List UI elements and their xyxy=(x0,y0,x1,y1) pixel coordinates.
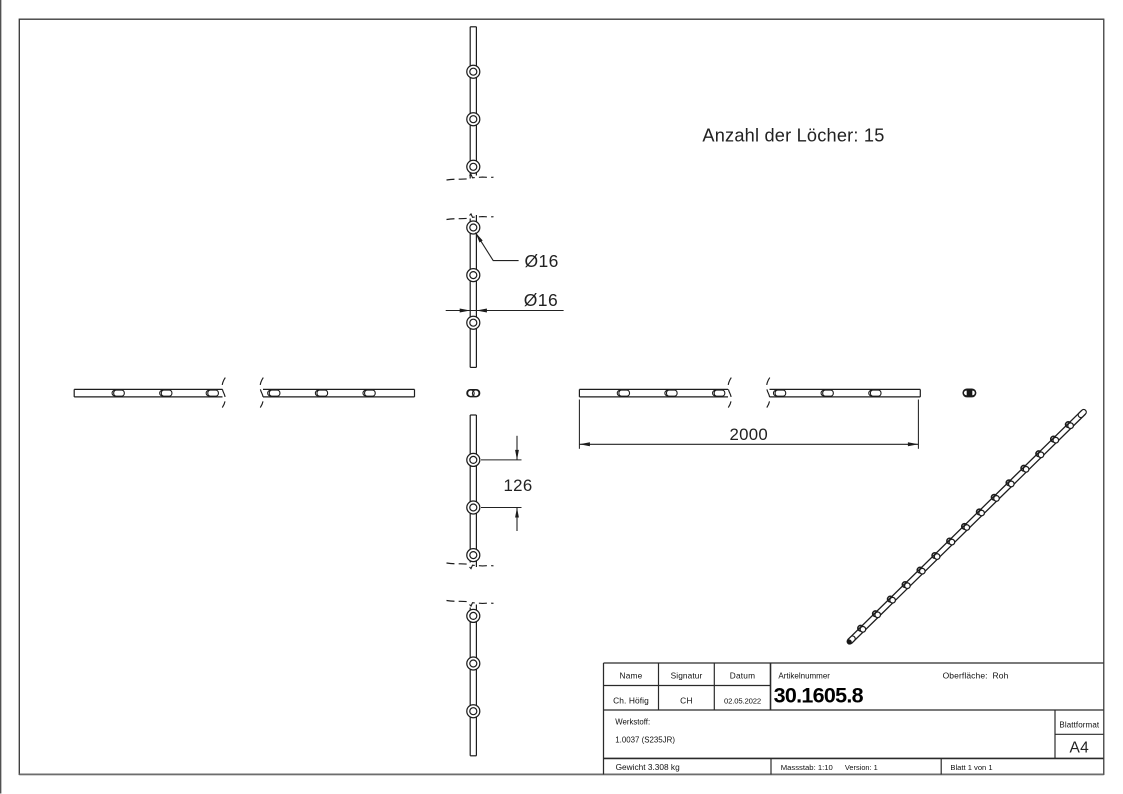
svg-text:Name: Name xyxy=(620,670,643,680)
svg-text:Blattformat: Blattformat xyxy=(1059,721,1099,730)
svg-text:2000: 2000 xyxy=(730,425,769,444)
svg-text:Ø16: Ø16 xyxy=(524,290,558,310)
svg-text:Werkstoff:: Werkstoff: xyxy=(615,717,650,726)
svg-text:Gewicht 3.308 kg: Gewicht 3.308 kg xyxy=(616,762,680,772)
svg-text:CH: CH xyxy=(680,695,693,705)
svg-text:Datum: Datum xyxy=(730,670,755,680)
svg-text:Signatur: Signatur xyxy=(671,670,703,680)
svg-text:Ø16: Ø16 xyxy=(525,251,559,271)
svg-text:30.1605.8: 30.1605.8 xyxy=(774,684,864,708)
svg-text:Massstab: 1:10: Massstab: 1:10 xyxy=(781,763,833,772)
svg-text:02.05.2022: 02.05.2022 xyxy=(724,696,761,705)
svg-text:Oberfläche: Roh: Oberfläche: Roh xyxy=(943,670,1009,680)
svg-text:A4: A4 xyxy=(1070,740,1090,757)
svg-text:Version: 1: Version: 1 xyxy=(845,763,878,772)
svg-text:Artikelnummer: Artikelnummer xyxy=(778,671,830,680)
svg-text:126: 126 xyxy=(504,476,533,495)
svg-text:Anzahl der Löcher: 15: Anzahl der Löcher: 15 xyxy=(702,126,884,146)
svg-text:Blatt 1 von 1: Blatt 1 von 1 xyxy=(950,763,992,772)
svg-text:Ch. Höfig: Ch. Höfig xyxy=(613,695,649,705)
svg-text:1.0037 (S235JR): 1.0037 (S235JR) xyxy=(615,735,675,744)
